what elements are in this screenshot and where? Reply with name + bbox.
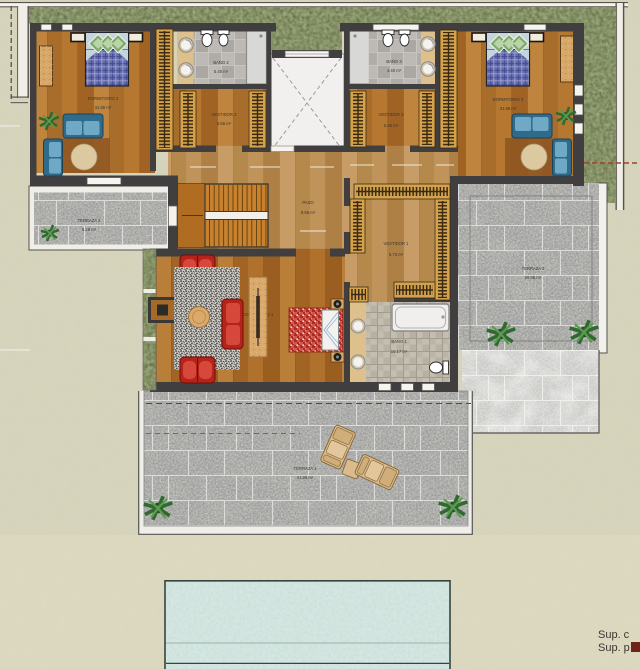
svg-text:Sup. c: Sup. c	[598, 629, 630, 641]
svg-text:TERRAZA 2: TERRAZA 2	[78, 218, 101, 223]
svg-text:31.88 m²: 31.88 m²	[500, 106, 517, 111]
svg-text:6.56 m²: 6.56 m²	[384, 123, 399, 128]
svg-text:9.55 m²: 9.55 m²	[301, 210, 316, 215]
svg-text:10.17 m²: 10.17 m²	[391, 349, 408, 354]
svg-text:BAÑO 1: BAÑO 1	[391, 339, 407, 344]
svg-text:VESTIDOR 3: VESTIDOR 3	[379, 112, 405, 117]
svg-text:PASO: PASO	[302, 200, 314, 205]
svg-text:4.40 m²: 4.40 m²	[387, 68, 402, 73]
svg-text:9.28 m²: 9.28 m²	[82, 227, 97, 232]
svg-text:5.40 m²: 5.40 m²	[214, 69, 229, 74]
svg-text:BAÑO 3: BAÑO 3	[386, 59, 402, 64]
svg-text:TERRAZA 3: TERRAZA 3	[522, 266, 545, 271]
svg-text:41.95 m²: 41.95 m²	[297, 475, 314, 480]
svg-text:31.88 m²: 31.88 m²	[95, 105, 112, 110]
svg-text:Sup. p: Sup. p	[598, 642, 630, 654]
svg-text:5.73 m²: 5.73 m²	[389, 252, 404, 257]
svg-text:VESTIDOR 1: VESTIDOR 1	[384, 241, 410, 246]
svg-text:DORMITORIO 3: DORMITORIO 3	[493, 97, 524, 102]
svg-text:DORMITORIO 2: DORMITORIO 2	[88, 96, 119, 101]
svg-text:BAÑO 2: BAÑO 2	[213, 60, 229, 65]
svg-text:VESTIDOR 2: VESTIDOR 2	[212, 112, 238, 117]
svg-text:TERRAZA 1: TERRAZA 1	[294, 466, 317, 471]
svg-text:6.56 m²: 6.56 m²	[217, 121, 232, 126]
svg-text:26.05 m²: 26.05 m²	[525, 275, 542, 280]
